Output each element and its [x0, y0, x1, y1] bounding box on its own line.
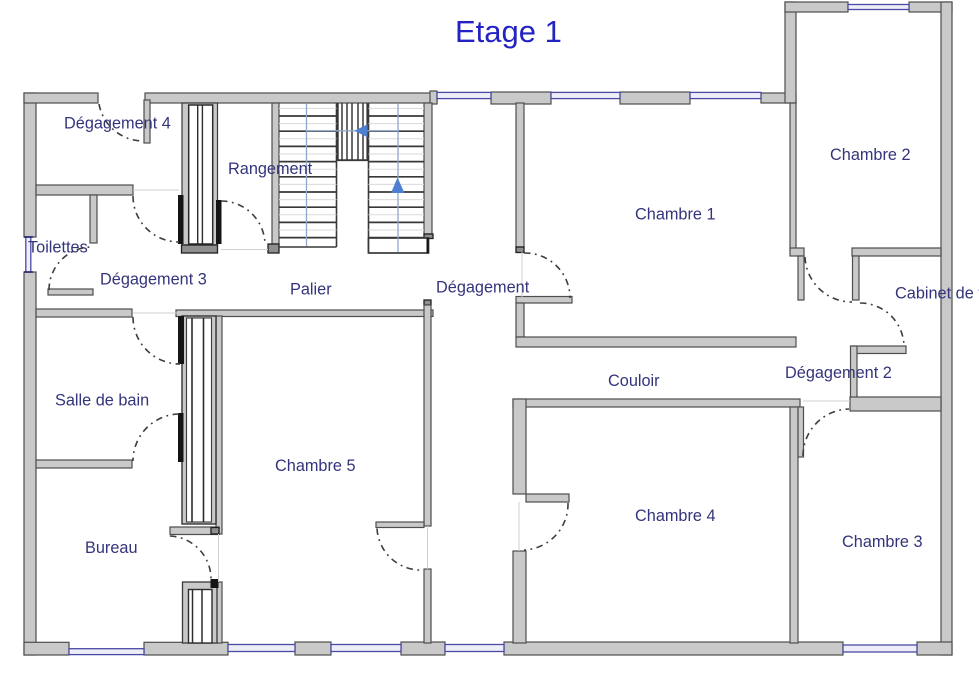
- svg-text:Couloir: Couloir: [608, 372, 660, 390]
- svg-text:Salle de bain: Salle de bain: [55, 392, 149, 410]
- svg-text:Bureau: Bureau: [85, 539, 138, 557]
- svg-text:Dégagement 3: Dégagement 3: [100, 271, 207, 289]
- svg-text:Chambre 3: Chambre 3: [842, 533, 923, 551]
- svg-text:Dégagement 2: Dégagement 2: [785, 364, 892, 382]
- svg-text:Cabinet de to: Cabinet de to: [895, 285, 979, 303]
- svg-text:Chambre 4: Chambre 4: [635, 507, 716, 525]
- svg-text:Etage 1: Etage 1: [455, 14, 562, 49]
- svg-text:Dégagement: Dégagement: [436, 279, 530, 297]
- svg-text:Chambre 5: Chambre 5: [275, 457, 356, 475]
- svg-text:Chambre 2: Chambre 2: [830, 146, 911, 164]
- svg-text:Palier: Palier: [290, 281, 332, 299]
- svg-text:Dégagement 4: Dégagement 4: [64, 115, 171, 133]
- svg-text:Rangement: Rangement: [228, 160, 313, 178]
- svg-text:Chambre 1: Chambre 1: [635, 206, 716, 224]
- svg-text:Toilettes: Toilettes: [28, 239, 88, 257]
